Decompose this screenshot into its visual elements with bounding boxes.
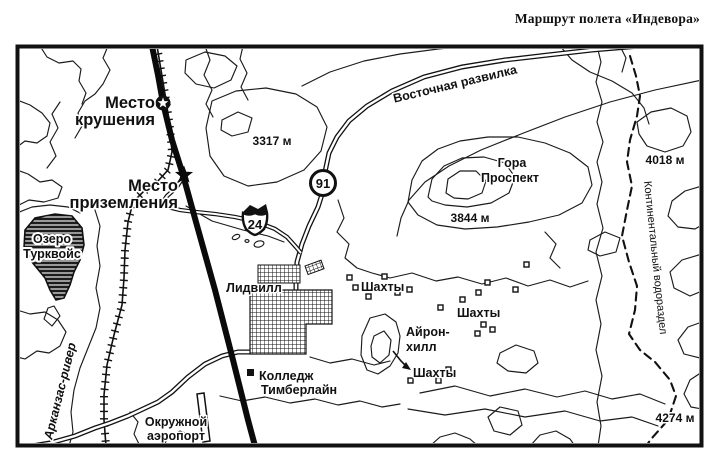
mine-marker bbox=[524, 262, 529, 267]
mine-marker bbox=[353, 285, 358, 290]
landing-site-label-line2: приземления bbox=[69, 194, 178, 212]
us-24-number: 24 bbox=[248, 217, 263, 232]
flight-route-map: Маршрут полета «Индевора» bbox=[0, 0, 720, 474]
mine-marker bbox=[438, 305, 443, 310]
crash-site-marker bbox=[156, 96, 171, 111]
mine-marker bbox=[407, 287, 412, 292]
mine-marker bbox=[481, 322, 486, 327]
mine-marker bbox=[382, 274, 387, 279]
mine-marker bbox=[475, 331, 480, 336]
college-label-line1: Колледж bbox=[259, 369, 314, 383]
elevation-4274: 4274 м bbox=[656, 411, 695, 425]
elevation-3844: 3844 м bbox=[451, 211, 490, 225]
crash-site-label-line2: крушения bbox=[75, 111, 155, 129]
elevation-4018: 4018 м bbox=[646, 153, 685, 167]
iron-hill-label-line2: хилл bbox=[406, 340, 437, 354]
college-label-line2: Тимберлайн bbox=[261, 383, 337, 397]
highway-91-shield: 91 bbox=[311, 171, 336, 196]
airport-label-line2: аэропорт bbox=[147, 429, 205, 443]
leadville-label: Лидвилл bbox=[226, 281, 282, 295]
mine-marker bbox=[513, 287, 518, 292]
airport-label-line1: Окружной bbox=[145, 415, 207, 429]
mine-marker bbox=[366, 294, 371, 299]
mine-marker bbox=[485, 280, 490, 285]
elevation-3317: 3317 м bbox=[253, 134, 292, 148]
mine-marker bbox=[347, 275, 352, 280]
lake-label-line2: Турквойс bbox=[23, 247, 81, 261]
college-marker bbox=[247, 369, 254, 376]
mine-marker bbox=[460, 297, 465, 302]
highway-91-number: 91 bbox=[316, 176, 330, 191]
mines-label-nw: Шахты bbox=[361, 280, 404, 294]
book-page: Маршрут полета «Индевора» bbox=[0, 0, 720, 474]
mount-prospect-label-line1: Гора bbox=[498, 156, 528, 170]
map-caption: Маршрут полета «Индевора» bbox=[515, 11, 700, 26]
lake-label-line1: Озеро bbox=[33, 232, 71, 246]
mines-label-east: Шахты bbox=[457, 306, 500, 320]
mine-marker bbox=[476, 290, 481, 295]
iron-hill-label-line1: Айрон- bbox=[406, 325, 450, 339]
crash-site-label-line1: Место bbox=[105, 94, 155, 112]
mount-prospect-label-line2: Проспект bbox=[481, 171, 539, 185]
mines-label-south: Шахты bbox=[413, 366, 456, 380]
mine-marker bbox=[490, 327, 495, 332]
landing-site-label-line1: Место bbox=[128, 177, 178, 195]
